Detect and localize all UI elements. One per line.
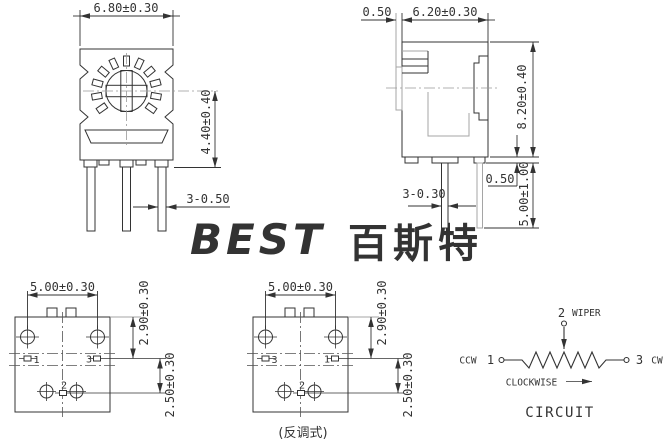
- circuit-pin-3: 3: [636, 353, 643, 367]
- dim-br-span: 5.00±0.30: [268, 280, 333, 294]
- bottom-view-reverse: 3 1 2 5.00±0.30 2.90±0.30 2.50±0.30 (反调式…: [247, 280, 415, 441]
- front-feet: [84, 160, 168, 167]
- pin: [477, 163, 483, 228]
- dim-side-height: 8.20±0.40: [515, 64, 529, 129]
- circuit-cw-label: CW: [651, 356, 663, 367]
- dim-bs-lower: 2.50±0.30: [163, 352, 177, 417]
- engineering-drawing: BEST 百斯特: [0, 0, 669, 445]
- resistor-zigzag: [504, 352, 624, 368]
- front-pins: [87, 167, 166, 231]
- terminal-1: [499, 358, 504, 363]
- pin: [123, 167, 131, 231]
- pin-number-right: 1: [324, 355, 330, 366]
- side-shaft: [396, 67, 402, 110]
- dim-br-lower: 2.50±0.30: [401, 352, 415, 417]
- pad: [262, 356, 269, 361]
- reverse-caption: (反调式): [278, 426, 327, 441]
- circuit-wiper-pin: 2: [558, 306, 565, 320]
- pin-number-left: 3: [272, 355, 278, 366]
- dim-side-pin-width: 3-0.30: [402, 187, 445, 201]
- dim-front-pin-width: 3-0.50: [186, 192, 229, 206]
- pad: [332, 356, 339, 361]
- dim-side-shaft: 0.50: [363, 5, 392, 19]
- dim-br-upper: 2.90±0.30: [375, 280, 389, 345]
- pad: [24, 356, 31, 361]
- dim-side-width: 6.20±0.30: [412, 5, 477, 19]
- dim-front-height: 4.40±0.40: [199, 89, 213, 154]
- dim-front-width: 6.80±0.30: [93, 1, 158, 15]
- watermark: BEST 百斯特: [190, 215, 483, 267]
- pin-number-center: 2: [299, 381, 305, 392]
- circuit-ccw-label: CCW: [459, 356, 476, 367]
- circuit-pin-1: 1: [487, 353, 494, 367]
- pin-number-right: 3: [86, 355, 92, 366]
- dial-ticks: [91, 56, 161, 114]
- circuit-diagram: 2 WIPER CCW 1 3 CW CLOCKWISE CIRCUIT: [459, 306, 663, 421]
- drawing-canvas: BEST 百斯特: [0, 0, 669, 445]
- circuit-direction-label: CLOCKWISE: [506, 378, 558, 389]
- watermark-cjk: 百斯特: [348, 221, 483, 267]
- bottom-view-standard: 1 3 2 5.00±0.30 2.90±0.30 2.50±0.30: [9, 280, 177, 418]
- dim-bs-span: 5.00±0.30: [30, 280, 95, 294]
- side-feet: [405, 157, 485, 163]
- terminal-3: [624, 358, 629, 363]
- pad: [94, 356, 101, 361]
- pin-number-center: 2: [61, 381, 67, 392]
- dim-side-standoff: 0.50: [486, 172, 515, 186]
- dim-side-pin-length: 5.00±1.00: [517, 161, 531, 226]
- side-ribs: [402, 51, 428, 73]
- pin-number-left: 1: [34, 355, 40, 366]
- side-interior-contour: [428, 92, 469, 136]
- watermark-latin: BEST: [190, 215, 326, 264]
- side-view: 0.50 6.20±0.30 8.20±0.40 0.50 5.00±1.00 …: [361, 5, 539, 228]
- front-view: 6.80±0.30 4.40±0.40 3-0.50: [73, 1, 230, 231]
- circuit-wiper-label: WIPER: [572, 308, 601, 319]
- pin: [158, 167, 166, 231]
- circuit-title: CIRCUIT: [525, 405, 595, 421]
- dim-bs-upper: 2.90±0.30: [137, 280, 151, 345]
- terminal-2: [562, 321, 567, 326]
- pin: [87, 167, 95, 231]
